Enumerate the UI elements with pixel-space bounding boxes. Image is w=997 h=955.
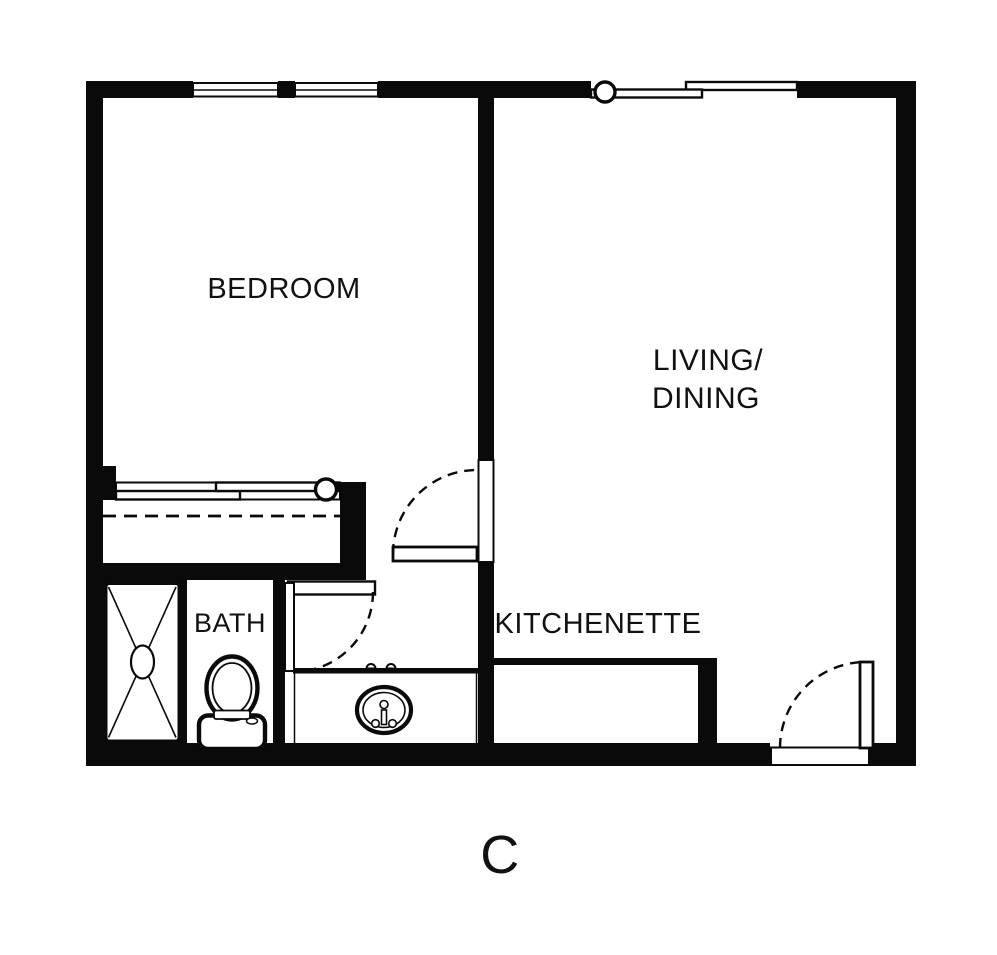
wall-bath-stub [273, 575, 285, 747]
vanity-faucet-handle-right [387, 664, 396, 669]
bedroom-label: BEDROOM [207, 273, 360, 305]
wall-central-lower [478, 562, 494, 747]
wall-bottom-right-corner [870, 743, 916, 766]
closet-slider-panel-left [116, 491, 240, 500]
entry-door-opening [771, 748, 869, 766]
shower-drain [131, 646, 154, 679]
wall-bottom-left [86, 743, 770, 766]
sink-faucet-stem [382, 710, 387, 725]
wall-right [896, 81, 916, 766]
sink-drain-dot-left [372, 720, 380, 728]
floor-plan-canvas: BEDROOM LIVING/ DINING BATH KITCHENETTE … [0, 0, 997, 955]
patio-sliding-door [591, 82, 797, 102]
bedroom-door [393, 460, 494, 562]
toilet-flush-handle [247, 718, 258, 724]
closet [103, 479, 350, 516]
wall-closet-left-stub [103, 466, 116, 500]
wall-kitchenette-stub [698, 658, 717, 766]
bath-door-swing-arc [293, 592, 373, 672]
kitchenette-counter-edge [494, 658, 698, 665]
walls [86, 81, 916, 766]
toilet [199, 657, 265, 750]
wall-top-between-windows [278, 81, 295, 98]
entry-door [771, 662, 873, 765]
sink-faucet [380, 701, 388, 709]
bedroom-door-opening [479, 460, 494, 562]
bedroom-door-leaf [393, 547, 477, 561]
wall-central-upper [478, 98, 494, 460]
wall-top-middle [378, 81, 591, 98]
entry-door-leaf [860, 662, 873, 748]
closet-slider-handle [316, 479, 337, 500]
unit-label: C [480, 825, 520, 885]
entry-door-swing-arc [780, 662, 866, 748]
patio-slider-handle [595, 82, 615, 102]
sink-drain-dot-right [389, 720, 397, 728]
bath-door [285, 582, 375, 673]
living-dining-label-line2: DINING [652, 382, 760, 415]
shower-stall [107, 584, 179, 741]
bath-door-opening [288, 582, 375, 595]
vanity-faucet-handle-left [367, 664, 376, 669]
bath-door-leaf [285, 583, 294, 671]
vanity [295, 664, 477, 743]
living-dining-label-line1: LIVING/ [653, 344, 763, 377]
kitchenette-label: KITCHENETTE [495, 608, 702, 640]
bath-label: BATH [194, 608, 266, 638]
bedroom-door-swing-arc [393, 470, 477, 554]
floor-plan-drawing: BEDROOM LIVING/ DINING BATH KITCHENETTE … [0, 0, 997, 955]
toilet-seat-hinge [214, 711, 250, 720]
